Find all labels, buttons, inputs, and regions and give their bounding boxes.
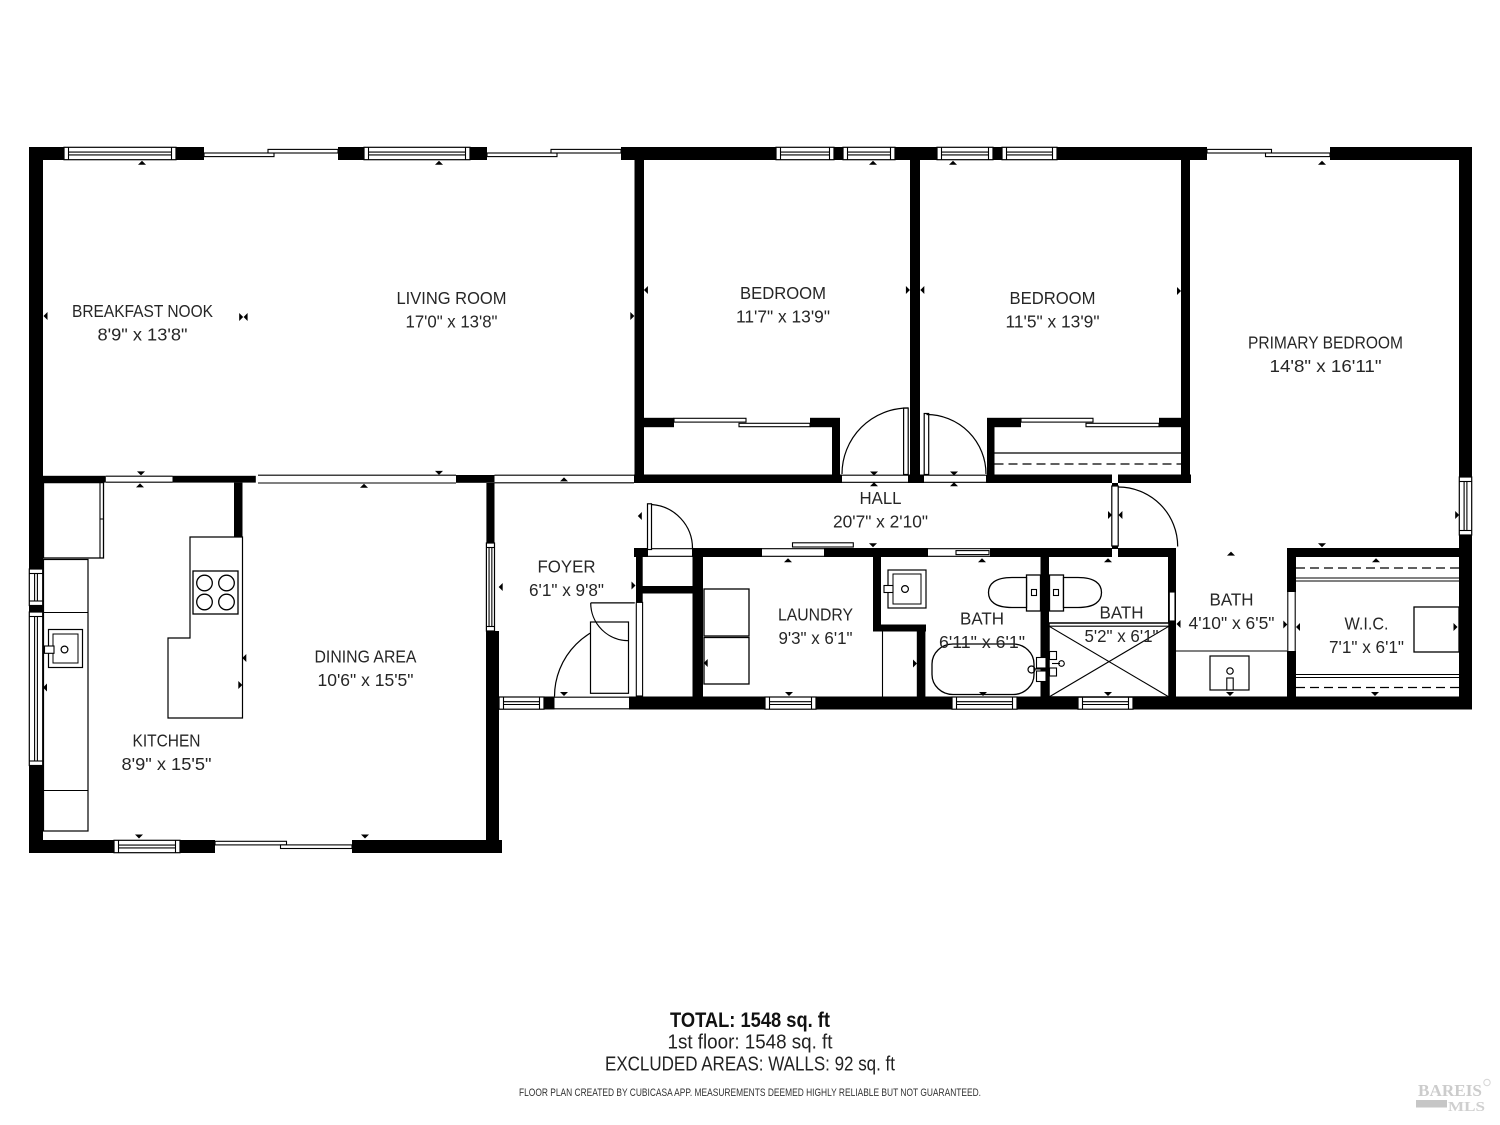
svg-text:BATH: BATH — [960, 609, 1004, 629]
svg-text:6'11" x 6'1": 6'11" x 6'1" — [939, 632, 1025, 652]
svg-text:7'1" x 6'1": 7'1" x 6'1" — [1329, 637, 1404, 657]
svg-text:LAUNDRY: LAUNDRY — [778, 605, 853, 625]
svg-text:6'1" x 9'8": 6'1" x 9'8" — [529, 580, 604, 600]
svg-text:8'9" x 15'5": 8'9" x 15'5" — [122, 754, 212, 774]
svg-text:BEDROOM: BEDROOM — [1010, 288, 1096, 308]
svg-text:TOTAL: 1548 sq. ft: TOTAL: 1548 sq. ft — [670, 1008, 830, 1032]
svg-text:KITCHEN: KITCHEN — [133, 731, 201, 751]
svg-text:10'6" x 15'5": 10'6" x 15'5" — [318, 670, 414, 690]
svg-text:4'10" x 6'5": 4'10" x 6'5" — [1189, 613, 1275, 633]
svg-text:11'7" x 13'9": 11'7" x 13'9" — [736, 307, 830, 327]
svg-text:20'7" x 2'10": 20'7" x 2'10" — [833, 512, 928, 532]
svg-text:11'5" x 13'9": 11'5" x 13'9" — [1006, 312, 1100, 332]
svg-text:BEDROOM: BEDROOM — [740, 283, 826, 303]
svg-text:1st floor: 1548 sq. ft: 1st floor: 1548 sq. ft — [668, 1032, 833, 1054]
svg-text:DINING AREA: DINING AREA — [315, 647, 417, 667]
svg-text:FOYER: FOYER — [538, 557, 596, 577]
svg-text:PRIMARY BEDROOM: PRIMARY BEDROOM — [1248, 333, 1403, 353]
svg-text:BREAKFAST NOOK: BREAKFAST NOOK — [72, 301, 213, 321]
svg-text:EXCLUDED AREAS: WALLS: 92 sq.: EXCLUDED AREAS: WALLS: 92 sq. ft — [605, 1054, 895, 1076]
svg-text:LIVING ROOM: LIVING ROOM — [397, 288, 507, 308]
svg-text:5'2" x 6'1": 5'2" x 6'1" — [1085, 626, 1159, 646]
svg-text:8'9" x 13'8": 8'9" x 13'8" — [98, 325, 188, 345]
svg-text:MLS: MLS — [1448, 1100, 1485, 1115]
svg-text:9'3" x 6'1": 9'3" x 6'1" — [779, 628, 853, 648]
svg-text:BAREIS: BAREIS — [1418, 1081, 1482, 1100]
svg-text:HALL: HALL — [860, 488, 902, 508]
svg-text:14'8" x 16'11": 14'8" x 16'11" — [1270, 356, 1382, 376]
svg-text:17'0" x 13'8": 17'0" x 13'8" — [406, 312, 498, 332]
svg-text:FLOOR PLAN CREATED BY CUBICASA: FLOOR PLAN CREATED BY CUBICASA APP. MEAS… — [519, 1087, 981, 1099]
svg-text:W.I.C.: W.I.C. — [1345, 614, 1389, 634]
svg-text:BATH: BATH — [1210, 590, 1254, 610]
svg-text:BATH: BATH — [1100, 603, 1144, 623]
